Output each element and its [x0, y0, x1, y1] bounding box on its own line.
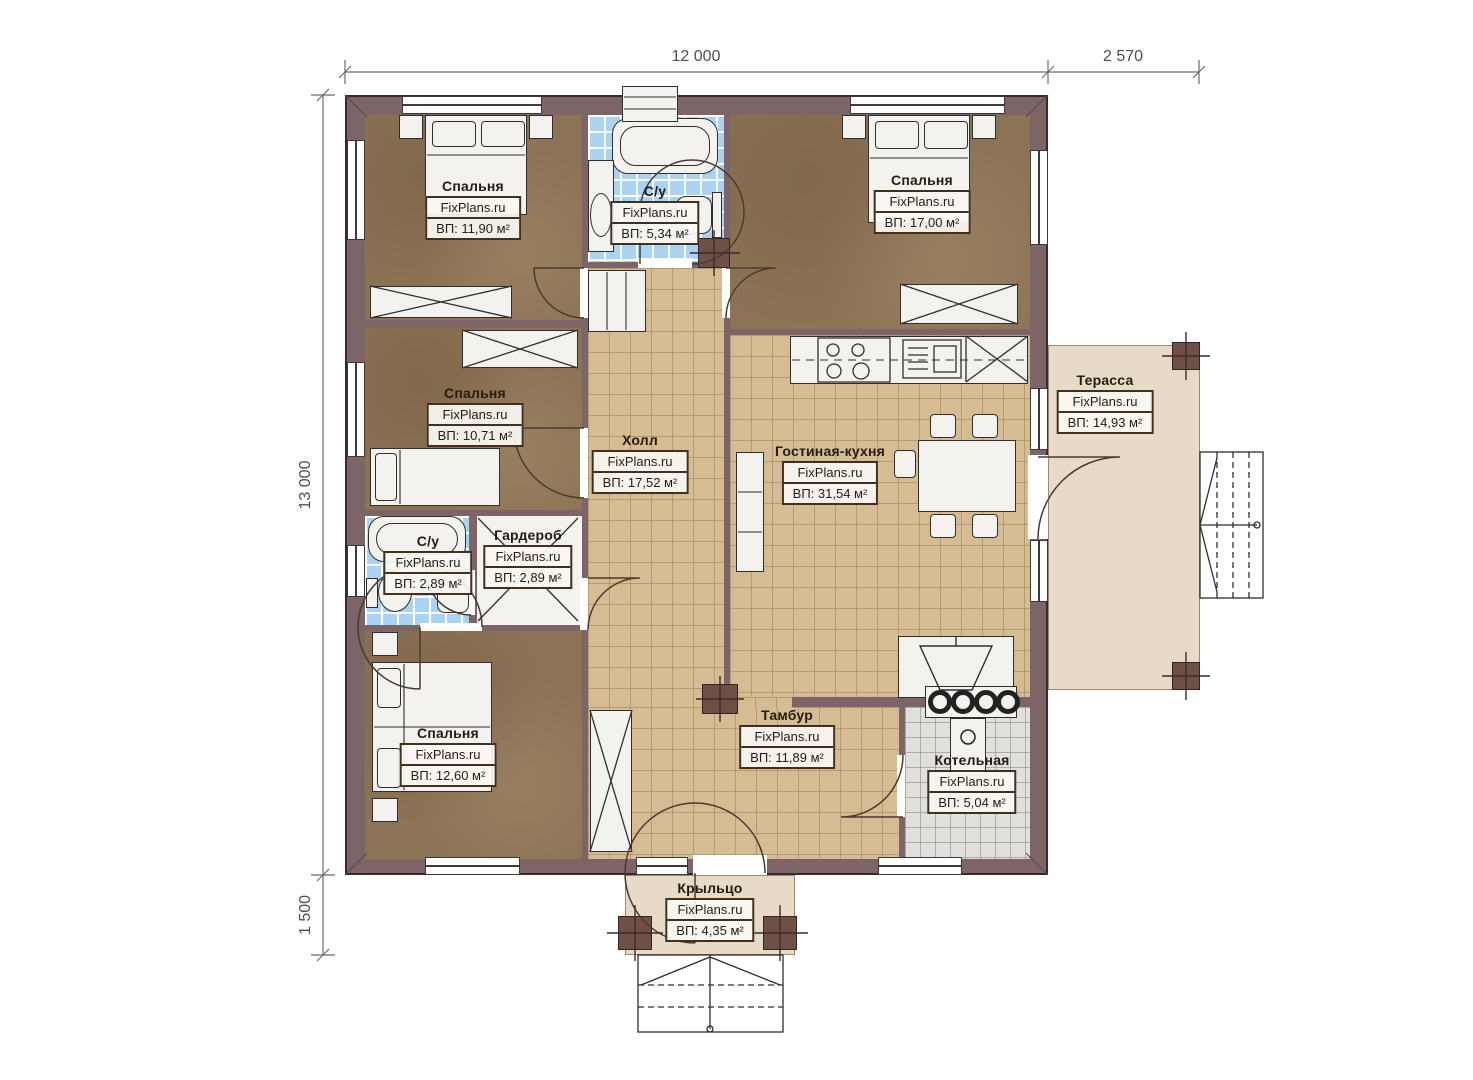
dim-top-right: 2 570 [1103, 48, 1143, 66]
porch-post-left [618, 916, 652, 950]
door-opening-bathroom-top [638, 258, 692, 268]
area-text: ВП: 17,52 м² [594, 471, 687, 492]
brand-text: FixPlans.ru [485, 547, 570, 566]
window-bedroom-tl [402, 96, 542, 114]
window-right-bedroom [1030, 150, 1048, 245]
window-right-living-2 [1030, 540, 1048, 602]
room-label-tambour: Тамбур FixPlans.ru ВП: 11,89 м² [739, 707, 835, 769]
window-tambour [636, 857, 688, 875]
wardrobe-tl [370, 286, 512, 318]
room-label-bathroom-top: С/у FixPlans.ru ВП: 5,34 м² [610, 183, 699, 245]
brand-text: FixPlans.ru [876, 192, 969, 211]
window-boiler [878, 857, 962, 875]
terrace-stairs [1200, 452, 1263, 598]
nightstand [529, 115, 553, 139]
sink-basin-top [590, 193, 612, 237]
porch-post-right [763, 916, 797, 950]
area-text: ВП: 5,34 м² [612, 222, 697, 243]
boiler-manifold [925, 686, 1017, 718]
pillow [377, 668, 401, 708]
nightstand [972, 115, 996, 139]
nightstand [372, 632, 398, 656]
area-text: ВП: 2,89 м² [385, 572, 470, 593]
brand-text: FixPlans.ru [429, 405, 522, 424]
dining-table [918, 440, 1016, 512]
door-opening-entry [693, 855, 767, 875]
area-text: ВП: 12,60 м² [402, 764, 495, 785]
room-label-bedroom-middle-left: Спальня FixPlans.ru ВП: 10,71 м² [427, 385, 524, 447]
window-left-1 [347, 140, 365, 240]
area-text: ВП: 11,89 м² [741, 746, 833, 767]
hall-closet [588, 270, 646, 332]
door-opening-bedroom-ml [580, 428, 588, 498]
brand-text: FixPlans.ru [385, 553, 470, 572]
room-label-bathroom-middle: С/у FixPlans.ru ВП: 2,89 м² [383, 533, 472, 595]
pillow [481, 121, 525, 147]
window-bedroom-tr [850, 96, 1005, 114]
dim-top-main: 12 000 [672, 48, 721, 66]
door-opening-bedroom-bl [420, 623, 482, 631]
door-opening-wardrobe [580, 578, 588, 630]
brand-text: FixPlans.ru [667, 900, 752, 919]
area-text: ВП: 5,04 м² [929, 791, 1014, 812]
pillow [432, 121, 476, 147]
window-bedroom-bl [425, 857, 520, 875]
porch-stairs [638, 955, 783, 1032]
window-left-2 [347, 362, 365, 457]
chair [894, 450, 916, 478]
room-label-boiler-room: Котельная FixPlans.ru ВП: 5,04 м² [927, 752, 1016, 814]
vent-post-bathroom [698, 238, 730, 268]
brand-text: FixPlans.ru [612, 203, 697, 222]
toilet-tank-mid [366, 578, 378, 608]
toilet-tank-top [712, 192, 722, 238]
nightstand [372, 798, 398, 822]
brand-text: FixPlans.ru [929, 772, 1014, 791]
chair [930, 514, 956, 538]
door-opening-bedroom-tl [580, 268, 588, 318]
wardrobe-tr [900, 284, 1018, 324]
area-text: ВП: 11,90 м² [427, 217, 519, 238]
door-opening-terrace [1028, 455, 1048, 539]
pillow [377, 748, 401, 788]
tv-stand [736, 452, 764, 572]
area-text: ВП: 14,93 м² [1059, 411, 1152, 432]
nightstand [399, 115, 423, 139]
door-opening-boiler [897, 755, 905, 817]
brand-text: FixPlans.ru [594, 452, 687, 471]
kitchen-counter [790, 336, 1028, 384]
brand-text: FixPlans.ru [741, 727, 833, 746]
floor-plan-canvas: 12 000 2 570 13 000 1 500 Спальня FixPla… [0, 0, 1473, 1080]
chair [930, 414, 956, 438]
window-left-bath [347, 545, 365, 597]
room-label-wardrobe: Гардероб FixPlans.ru ВП: 2,89 м² [483, 527, 572, 589]
brand-text: FixPlans.ru [1059, 392, 1152, 411]
bathtub-inner [620, 126, 710, 166]
nightstand [842, 115, 866, 139]
pillow [924, 121, 968, 149]
room-label-hall: Холл FixPlans.ru ВП: 17,52 м² [592, 432, 689, 494]
junction-post [702, 684, 738, 714]
dim-left-bottom: 1 500 [297, 895, 315, 935]
pillow [875, 121, 919, 149]
room-label-bedroom-top-right: Спальня FixPlans.ru ВП: 17,00 м² [874, 172, 971, 234]
door-opening-bedroom-tr [722, 268, 730, 318]
room-label-living-kitchen: Гостиная-кухня FixPlans.ru ВП: 31,54 м² [775, 443, 885, 505]
dim-left-main: 13 000 [297, 461, 315, 510]
wardrobe-ml [462, 330, 578, 368]
chimney-block [622, 86, 678, 122]
brand-text: FixPlans.ru [427, 198, 519, 217]
room-label-porch: Крыльцо FixPlans.ru ВП: 4,35 м² [665, 880, 754, 942]
room-label-bedroom-bottom-left: Спальня FixPlans.ru ВП: 12,60 м² [400, 725, 497, 787]
chair [972, 414, 998, 438]
room-label-bedroom-top-left: Спальня FixPlans.ru ВП: 11,90 м² [425, 178, 521, 240]
room-label-terrace: Терасса FixPlans.ru ВП: 14,93 м² [1057, 372, 1154, 434]
terrace-post-top [1172, 342, 1200, 370]
brand-text: FixPlans.ru [402, 745, 495, 764]
area-text: ВП: 10,71 м² [429, 424, 522, 445]
window-right-living-1 [1030, 388, 1048, 450]
brand-text: FixPlans.ru [784, 463, 877, 482]
pillow [375, 453, 397, 501]
terrace-post-bottom [1172, 662, 1200, 690]
area-text: ВП: 2,89 м² [485, 566, 570, 587]
chair [972, 514, 998, 538]
area-text: ВП: 31,54 м² [784, 482, 877, 503]
area-text: ВП: 4,35 м² [667, 919, 752, 940]
wardrobe-tambour [590, 710, 632, 852]
area-text: ВП: 17,00 м² [876, 211, 969, 232]
